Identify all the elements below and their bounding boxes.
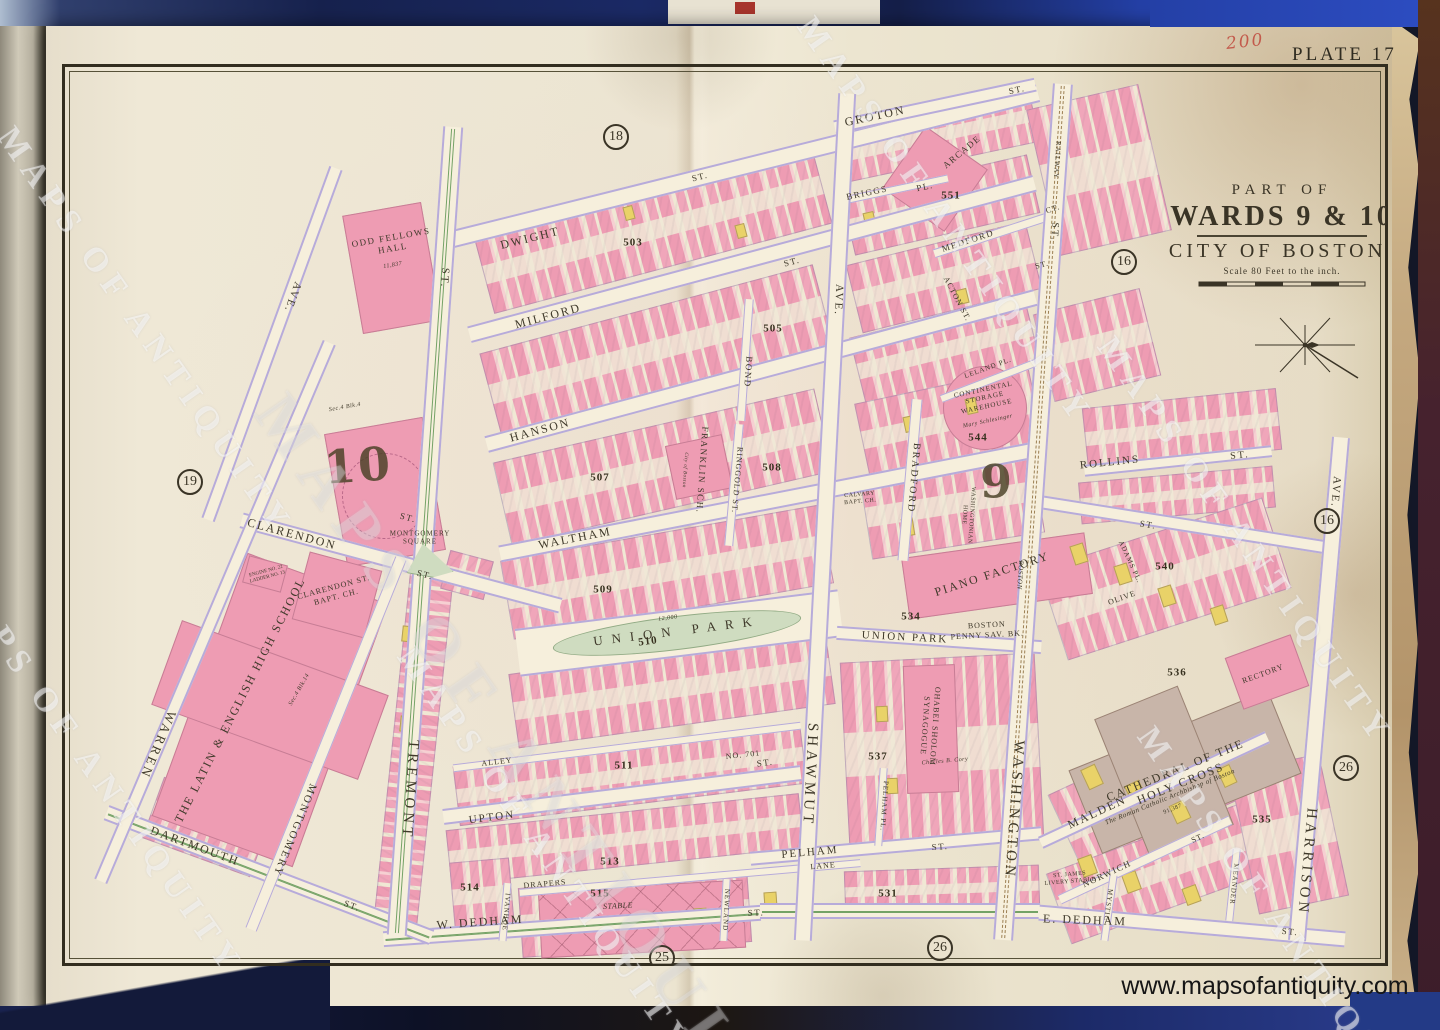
street-label-lane: LANE — [810, 860, 836, 872]
title-scale: Scale 80 Feet to the inch. — [1132, 266, 1386, 276]
block-number: 534 — [901, 610, 921, 623]
block-number: 515 — [590, 887, 610, 900]
block-number-510: 510 — [638, 634, 659, 649]
plate-ref-16-right: 16 — [1314, 508, 1340, 534]
handwritten-price: 200 — [1225, 30, 1265, 54]
dealer-website: www.mapsofantiquity.com — [1100, 972, 1430, 1001]
scale-bar — [1197, 278, 1367, 290]
compass-star-icon — [1250, 300, 1360, 390]
block-number: 511 — [615, 759, 634, 772]
street-suffix: ST. — [1281, 926, 1298, 938]
block-number: 531 — [878, 887, 898, 900]
street-suffix: ST. — [1230, 449, 1251, 463]
street-suffix: ST. — [1047, 222, 1060, 242]
title-city: CITY OF BOSTON. — [1132, 240, 1386, 263]
block-number: 535 — [1252, 813, 1272, 826]
fabric-corner-bottom-left — [0, 960, 330, 1030]
street-suffix: ST. — [748, 907, 765, 918]
street-suffix: ST. — [437, 267, 452, 289]
block-number: 505 — [763, 322, 783, 335]
street-suffix: ST. — [756, 757, 774, 770]
plate-ref-18: 18 — [603, 124, 629, 150]
street-label-bond: BOND — [742, 356, 755, 388]
block-number: 507 — [590, 471, 610, 484]
map-content: DWIGHT ST. GROTON ST. BRIGGS PL. MEDFORD… — [64, 66, 1386, 964]
paper-scrap-top — [668, 0, 880, 24]
boston-penny-bank-label: BOSTON PENNY SAV. BK. — [950, 618, 1024, 641]
adjacent-page-edge-left — [0, 26, 46, 1006]
block-number: 514 — [460, 881, 480, 894]
photographed-atlas-page: DWIGHT ST. GROTON ST. BRIGGS PL. MEDFORD… — [0, 0, 1440, 1030]
street-suffix: ST. — [931, 841, 948, 853]
title-wards: WARDS 9 & 10 — [1132, 201, 1386, 233]
map-title-block: PART OF WARDS 9 & 10 CITY OF BOSTON. Sca… — [1132, 182, 1386, 295]
block-number: 513 — [600, 855, 620, 868]
street-suffix: ST. — [1139, 518, 1157, 531]
title-rule — [1197, 235, 1367, 237]
plate-ref-19: 19 — [177, 469, 203, 495]
street-label-e-dedham: E. DEDHAM — [1043, 911, 1127, 928]
calvary-baptist-label: CALVARY BAPT. CH. — [843, 490, 876, 507]
block-number: 503 — [623, 236, 643, 249]
wood-building — [876, 706, 889, 723]
deckled-page-edge-right — [1392, 20, 1420, 1010]
ward-number-9: 9 — [980, 454, 1014, 509]
block-number: 536 — [1167, 666, 1187, 679]
odd-fellows-parcel-note: Sec.4 Blk.4 — [328, 402, 361, 415]
plate-ref-25-bottom: 25 — [649, 945, 675, 964]
street-label-ave-northwest: AVE. — [280, 280, 303, 315]
plate-number-label: PLATE 17 — [1292, 44, 1397, 66]
block-number: 537 — [868, 750, 888, 763]
block-number: 540 — [1155, 560, 1175, 573]
block-number: 509 — [593, 583, 613, 596]
block-number: 551 — [941, 189, 961, 202]
ward-number-10: 10 — [322, 436, 394, 496]
red-scrap-top — [735, 2, 755, 14]
block-number: 544 — [968, 431, 988, 444]
plate-ref-26-right: 26 — [1333, 755, 1359, 781]
block-number: 508 — [762, 461, 782, 474]
blue-fabric-top-right — [1150, 0, 1418, 27]
montgomery-square-label: MONTGOMERY SQUARE — [390, 530, 451, 547]
stable-label: STABLE — [603, 900, 633, 911]
plate-ref-26-bottom: 26 — [927, 935, 953, 961]
street-suffix: AVE. — [831, 284, 846, 317]
book-cover-edge-right — [1418, 0, 1440, 1030]
title-part-of: PART OF — [1132, 182, 1386, 199]
street-suffix: AVE. — [1327, 476, 1343, 509]
